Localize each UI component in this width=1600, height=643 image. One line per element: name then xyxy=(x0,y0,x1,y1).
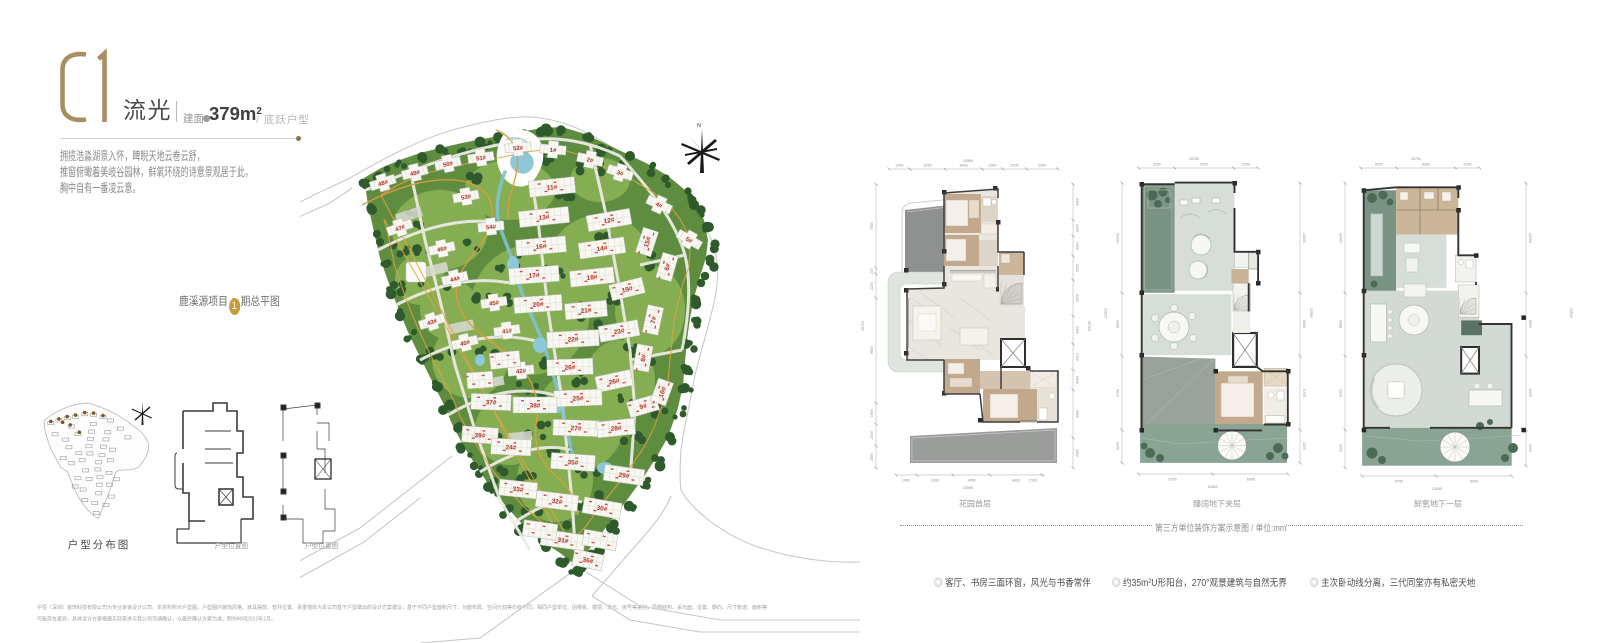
svg-text:3200: 3200 xyxy=(1528,444,1532,452)
svg-text:6700: 6700 xyxy=(1339,389,1343,397)
svg-text:27#: 27# xyxy=(570,425,581,432)
svg-text:3250: 3250 xyxy=(923,164,931,168)
svg-text:7600: 7600 xyxy=(870,222,874,230)
svg-text:15550: 15550 xyxy=(963,486,973,490)
svg-text:4800: 4800 xyxy=(1012,479,1020,483)
svg-text:22500: 22500 xyxy=(1569,308,1573,318)
svg-text:6700: 6700 xyxy=(1302,389,1306,397)
svg-text:3250: 3250 xyxy=(1153,163,1161,167)
svg-text:2300: 2300 xyxy=(1075,326,1079,334)
svg-text:2200: 2200 xyxy=(1463,163,1471,167)
svg-text:6700: 6700 xyxy=(1116,389,1120,397)
svg-text:2900: 2900 xyxy=(870,453,874,461)
svg-text:21#: 21# xyxy=(580,307,592,315)
svg-text:10750: 10750 xyxy=(1411,157,1421,161)
svg-text:2000: 2000 xyxy=(870,431,874,439)
svg-text:6900: 6900 xyxy=(1247,478,1255,482)
svg-text:18#: 18# xyxy=(586,274,598,282)
svg-text:5300: 5300 xyxy=(1422,163,1430,167)
svg-text:20#: 20# xyxy=(532,301,544,309)
svg-text:39#: 39# xyxy=(474,432,486,440)
svg-text:35#: 35# xyxy=(567,459,579,467)
svg-text:25700: 25700 xyxy=(1087,321,1091,331)
svg-text:25#: 25# xyxy=(572,395,583,402)
svg-text:1200: 1200 xyxy=(1075,224,1079,232)
svg-text:1#: 1# xyxy=(549,148,557,155)
svg-text:3250: 3250 xyxy=(1375,163,1383,167)
svg-text:户型位置图: 户型位置图 xyxy=(215,541,248,550)
svg-text:5800: 5800 xyxy=(1339,320,1343,328)
svg-text:13650: 13650 xyxy=(1207,485,1217,489)
svg-text:200: 200 xyxy=(870,268,874,274)
svg-text:户型位置图: 户型位置图 xyxy=(305,541,338,550)
svg-text:10000: 10000 xyxy=(1302,233,1306,243)
svg-text:1900: 1900 xyxy=(1075,242,1079,250)
svg-text:6100: 6100 xyxy=(1528,389,1532,397)
svg-text:22500: 22500 xyxy=(1309,308,1313,318)
svg-text:5800: 5800 xyxy=(1302,320,1306,328)
svg-text:3200: 3200 xyxy=(1075,294,1079,302)
svg-text:3300: 3300 xyxy=(931,479,939,483)
svg-text:户型分布图: 户型分布图 xyxy=(68,538,131,551)
svg-text:3200: 3200 xyxy=(1075,449,1079,457)
svg-text:42#: 42# xyxy=(516,368,527,375)
svg-text:10000: 10000 xyxy=(1528,233,1532,243)
svg-text:3300: 3300 xyxy=(1075,198,1079,206)
svg-text:9600: 9600 xyxy=(870,346,874,354)
svg-text:5800: 5800 xyxy=(1116,320,1120,328)
svg-text:2200: 2200 xyxy=(870,282,874,290)
svg-text:5800: 5800 xyxy=(1528,320,1532,328)
svg-text:2700: 2700 xyxy=(1075,353,1079,361)
svg-text:17#: 17# xyxy=(528,272,540,280)
svg-text:3200: 3200 xyxy=(1339,444,1343,452)
svg-text:10750: 10750 xyxy=(1189,157,1199,161)
svg-text:1900: 1900 xyxy=(988,164,996,168)
svg-text:2200: 2200 xyxy=(1075,264,1079,272)
svg-text:10000: 10000 xyxy=(1339,233,1343,243)
svg-text:N: N xyxy=(697,123,701,129)
svg-text:22500: 22500 xyxy=(1104,308,1108,318)
svg-text:33#: 33# xyxy=(512,486,524,494)
svg-text:6750: 6750 xyxy=(1395,480,1403,484)
svg-text:3900: 3900 xyxy=(1075,410,1079,418)
svg-text:24#: 24# xyxy=(505,444,517,452)
svg-text:3450: 3450 xyxy=(967,479,975,483)
svg-text:52#: 52# xyxy=(513,146,524,153)
svg-text:5300: 5300 xyxy=(1200,163,1208,167)
svg-text:2100: 2100 xyxy=(1029,479,1037,483)
svg-text:15550: 15550 xyxy=(963,159,973,163)
svg-text:32#: 32# xyxy=(551,498,563,506)
svg-text:2900: 2900 xyxy=(1038,164,1046,168)
svg-text:26#: 26# xyxy=(564,364,575,371)
svg-text:3200: 3200 xyxy=(1302,442,1306,450)
svg-text:37#: 37# xyxy=(485,399,496,406)
svg-text:13650: 13650 xyxy=(1432,487,1442,491)
svg-text:13#: 13# xyxy=(538,214,550,222)
svg-text:2200: 2200 xyxy=(1242,163,1250,167)
svg-text:22#: 22# xyxy=(567,336,579,344)
svg-text:1900: 1900 xyxy=(902,479,910,483)
svg-text:28#: 28# xyxy=(610,425,622,433)
svg-text:3400: 3400 xyxy=(959,164,967,168)
svg-text:2200: 2200 xyxy=(1010,164,1018,168)
svg-text:10000: 10000 xyxy=(1116,233,1120,243)
svg-text:3200: 3200 xyxy=(1116,442,1120,450)
svg-text:38#: 38# xyxy=(530,403,541,410)
svg-text:1900: 1900 xyxy=(870,409,874,417)
svg-text:6900: 6900 xyxy=(1470,480,1478,484)
svg-text:54#: 54# xyxy=(486,224,497,231)
svg-text:6750: 6750 xyxy=(1168,478,1176,482)
svg-text:1900: 1900 xyxy=(895,164,903,168)
svg-text:11#: 11# xyxy=(547,184,559,192)
svg-text:16#: 16# xyxy=(535,243,547,251)
svg-text:25700: 25700 xyxy=(861,321,865,331)
svg-text:1600: 1600 xyxy=(1075,376,1079,384)
